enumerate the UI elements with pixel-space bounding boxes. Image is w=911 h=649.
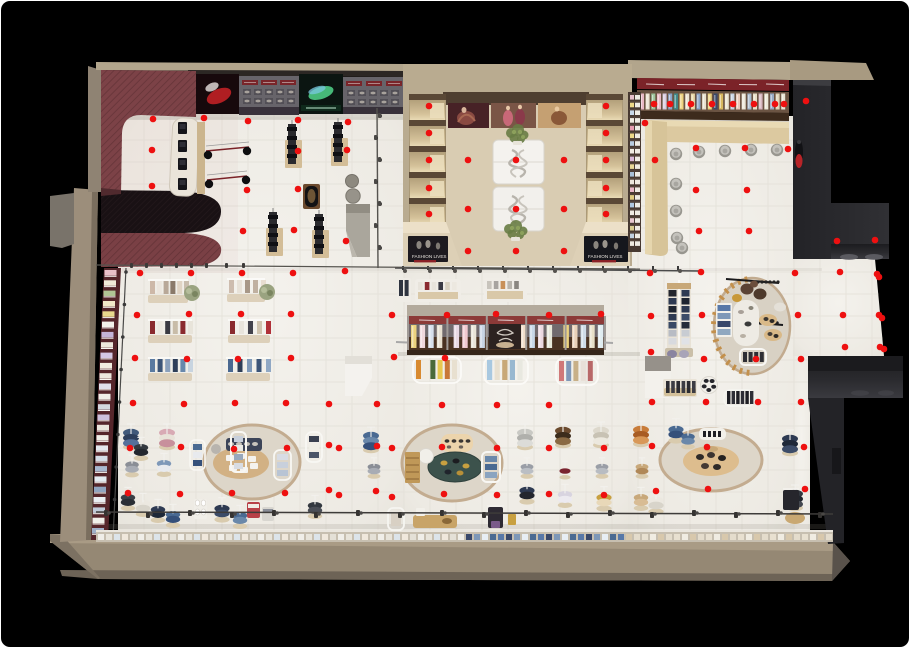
svg-text:FASHION LIVES: FASHION LIVES xyxy=(412,254,446,259)
svg-text:FASHION LIVES: FASHION LIVES xyxy=(588,254,622,259)
